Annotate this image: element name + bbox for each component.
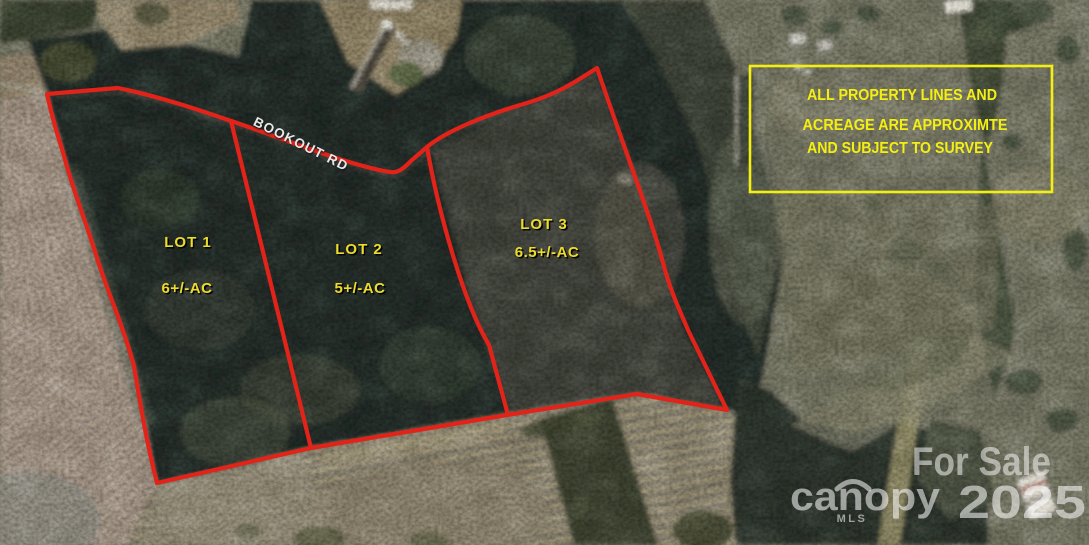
svg-text:LOT 3: LOT 3 [520, 216, 568, 233]
svg-text:MLS: MLS [837, 513, 868, 525]
svg-text:ALL PROPERTY LINES AND: ALL PROPERTY LINES AND [807, 87, 997, 104]
svg-text:2025: 2025 [958, 476, 1086, 528]
svg-text:6+/-AC: 6+/-AC [162, 280, 213, 297]
svg-text:5+/-AC: 5+/-AC [335, 280, 386, 297]
svg-text:LOT 2: LOT 2 [335, 241, 383, 258]
svg-text:LOT 1: LOT 1 [164, 234, 212, 251]
svg-text:6.5+/-AC: 6.5+/-AC [515, 244, 579, 261]
svg-text:ACREAGE ARE APPROXIMTE: ACREAGE ARE APPROXIMTE [803, 117, 1008, 134]
svg-text:AND SUBJECT TO SURVEY: AND SUBJECT TO SURVEY [807, 140, 994, 157]
